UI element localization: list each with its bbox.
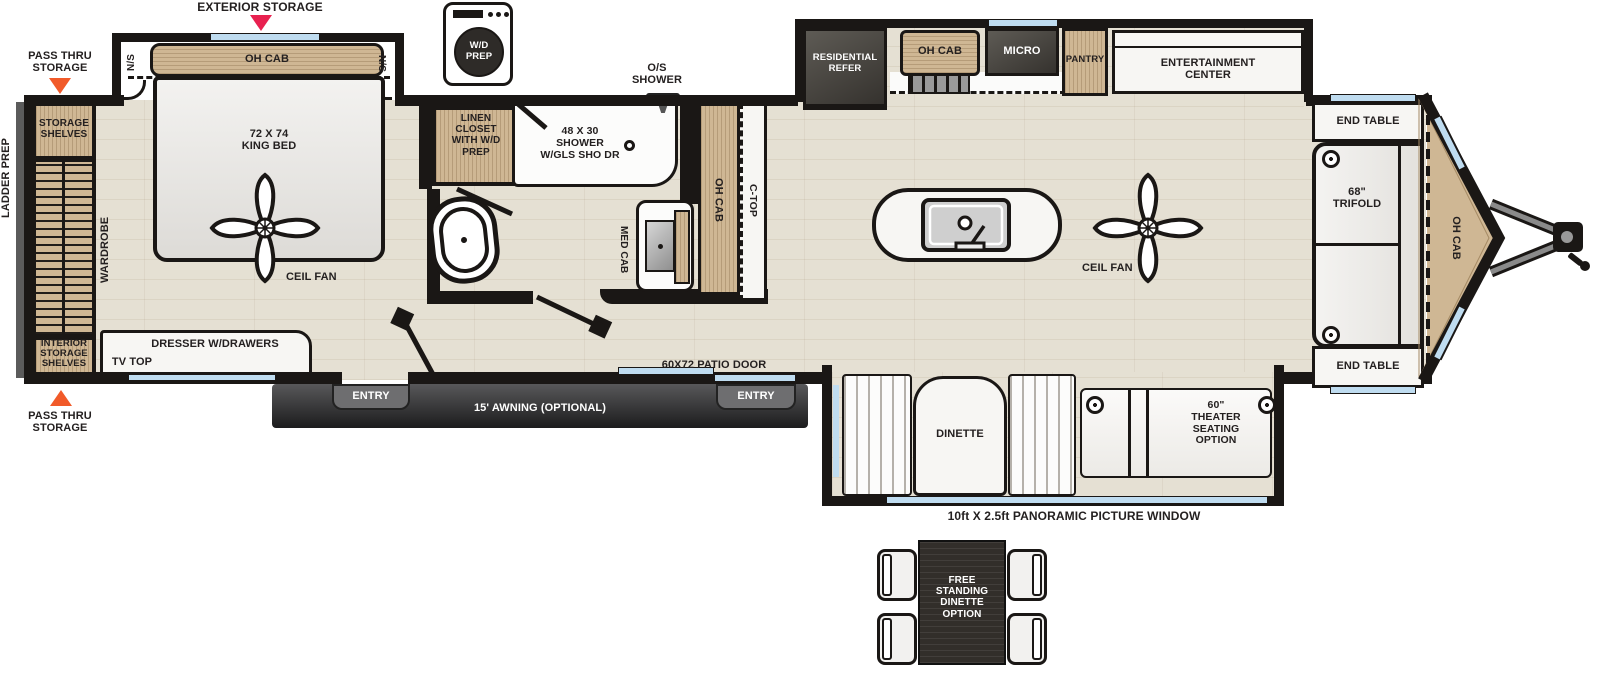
bath-wall-left-top [419,100,432,189]
bedroom-oh-cab-label: OH CAB [150,53,384,65]
top-wall-rear [24,95,124,106]
tv-top-label: TV TOP [106,356,158,368]
pantry-label: PANTRY [1058,55,1112,66]
os-shower-label: O/S SHOWER [620,62,694,87]
wd-prep-label: W/D PREP [456,41,502,62]
free-dinette-chair [1007,613,1047,665]
dinette-label: DINETTE [913,428,1007,440]
patio-door-label: 60X72 PATIO DOOR [652,359,776,371]
free-dinette-label: FREE STANDING DINETTE OPTION [918,575,1006,620]
c-top-label: C-TOP [746,165,758,235]
hitch-icon [1491,204,1590,272]
washer-icon: W/D PREP [443,2,513,86]
shower-label: 48 X 30 SHOWER W/GLS SHO DR [520,126,640,161]
shower-drain-icon [624,140,635,151]
free-dinette-chair [877,549,917,601]
trifold-seam-v [1398,146,1401,344]
dinette-bench-left [842,374,912,496]
living-ceil-fan-label: CEIL FAN [1082,262,1162,274]
kitchen-oh-cab-label: OH CAB [900,45,980,57]
pass-thru-bottom-arrow-icon [50,390,72,406]
vanity-cabinet [674,210,690,284]
entertainment-center-label: ENTERTAINMENT CENTER [1112,57,1304,82]
bath-wall-bottom [427,291,533,304]
entry-right-label: ENTRY [716,390,796,402]
bedroom-rear-window [128,374,276,381]
interior-storage-label: INTERIOR STORAGE SHELVES [33,339,95,369]
linen-closet-label: LINEN CLOSET WITH W/D PREP [434,113,518,158]
kitchen-slide-window [988,19,1058,27]
micro-label: MICRO [985,45,1059,57]
top-wall-mid [395,95,798,106]
panoramic-window [886,496,1268,504]
floor-plan: STORAGE SHELVES WARDROBE INTERIOR STORAG… [0,0,1600,676]
end-table-top-label: END TABLE [1312,115,1424,127]
med-cab-label: MED CAB [618,214,629,286]
patio-door-glass-b [714,374,796,382]
bedroom-slide-window [210,33,320,41]
dresser-label: DRESSER W/DRAWERS [130,338,300,350]
free-dinette-chair [877,613,917,665]
toilet-icon [420,188,508,292]
exterior-storage-arrow-icon [250,15,272,31]
free-dinette-chair [1007,549,1047,601]
storage-shelves-label: STORAGE SHELVES [34,118,94,140]
island-sink-icon [918,196,1016,256]
end-table-bottom-label: END TABLE [1312,360,1424,372]
trifold-seam-h [1316,243,1398,246]
front-window-bottom [1330,386,1416,394]
front-cap: OH CAB [1415,86,1600,401]
bedroom-ns-left-label: N/S [126,46,137,80]
panoramic-window-label: 10ft X 2.5ft PANORAMIC PICTURE WINDOW [894,510,1254,523]
cup-holder-icon [1322,150,1340,168]
cup-holder-icon [1086,396,1104,414]
cooktop-icon [908,74,970,94]
trifold-label: 68" TRIFOLD [1316,186,1398,211]
bedroom-ns-right-label: N/S [376,46,387,80]
ladder-prep-label: LADDER PREP [0,108,12,248]
wardrobe-divider [62,162,65,334]
theater-console-line [1128,390,1131,476]
dinette-bench-right [1008,374,1076,496]
front-oh-cab-label: OH CAB [1450,216,1462,259]
residential-refer-label: RESIDENTIAL REFER [803,53,887,74]
exterior-storage-label: EXTERIOR STORAGE [195,1,325,14]
rear-slide-side-window [833,385,839,477]
theater-label: 60" THEATER SEATING OPTION [1168,400,1264,447]
bath-oh-cab-label: OH CAB [712,160,724,240]
wardrobe-label: WARDROBE [99,195,111,305]
bedroom-ceil-fan-label: CEIL FAN [286,271,356,283]
bath-wall-right [680,100,698,204]
king-bed-label: 72 X 74 KING BED [199,128,339,153]
pass-thru-top-label: PASS THRU STORAGE [14,50,106,75]
vanity-sink-icon [645,220,675,272]
theater-console-line [1146,390,1149,476]
pass-thru-top-arrow-icon [49,78,71,94]
pass-thru-bottom-label: PASS THRU STORAGE [14,410,106,435]
cup-holder-icon [1322,326,1340,344]
entry-left-label: ENTRY [332,390,410,402]
entertainment-center-shelf [1115,46,1301,48]
front-window-top [1330,94,1416,102]
